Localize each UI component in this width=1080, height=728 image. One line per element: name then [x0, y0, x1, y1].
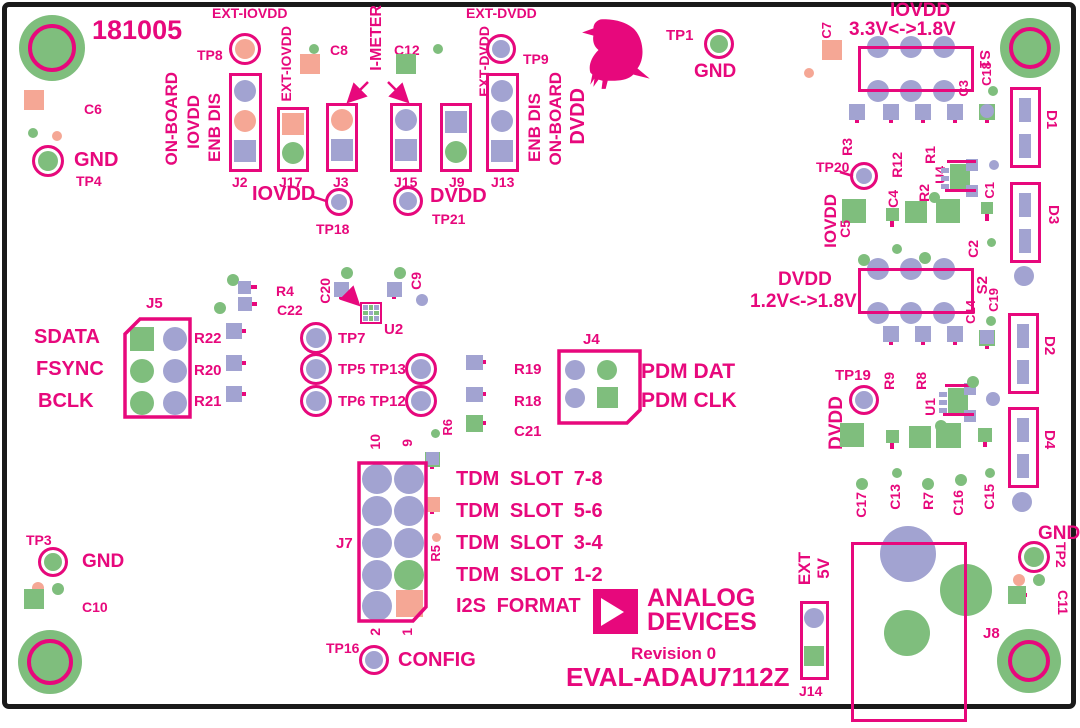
- label-c1: C1: [983, 182, 996, 199]
- via: [989, 160, 999, 170]
- ic-u4-mark: [945, 189, 976, 192]
- via: [416, 294, 428, 306]
- testpoint-tp3: [38, 547, 68, 577]
- label-c11: C11: [1056, 590, 1070, 615]
- label-u1: U1: [923, 398, 937, 416]
- testpoint-tp12: [405, 385, 437, 417]
- pad: [394, 496, 424, 526]
- testpoint-tp6: [300, 385, 332, 417]
- label-fsync: FSYNC: [36, 359, 104, 379]
- label-r6: R6: [441, 419, 454, 436]
- pad: [394, 560, 424, 590]
- cap-c13: [890, 430, 894, 449]
- cap-c1: [985, 202, 989, 221]
- pad: [980, 104, 994, 118]
- via: [1033, 574, 1045, 586]
- label-dvdd-tp21: DVDD: [430, 186, 487, 206]
- pad: [334, 282, 349, 297]
- mounting-hole: [19, 15, 85, 81]
- bird-icon: [578, 10, 660, 94]
- hole-ring: [28, 24, 76, 72]
- label-pin10: 10: [368, 434, 382, 450]
- cap-c2: [946, 199, 950, 218]
- label-j5: J5: [146, 296, 163, 311]
- pad: [396, 590, 423, 617]
- pad: [226, 386, 242, 402]
- label-d3: D3: [1046, 205, 1061, 224]
- label-i2s-format: I2S FORMAT: [456, 596, 581, 616]
- pad: [597, 387, 618, 408]
- via: [856, 478, 868, 490]
- testpoint-tp8: [229, 33, 261, 65]
- pad: [941, 168, 949, 173]
- pad: [163, 327, 187, 351]
- res-r4: [238, 285, 257, 289]
- label-r8: R8: [914, 372, 928, 390]
- label-tp3: TP3: [26, 533, 52, 547]
- pad: [394, 464, 424, 494]
- label-r4: R4: [276, 284, 294, 298]
- label-pin9: 9: [400, 439, 414, 447]
- label-c3: C3: [957, 80, 970, 97]
- via: [394, 267, 406, 279]
- label-r22: R22: [194, 331, 222, 346]
- testpoint-tp16: [359, 645, 389, 675]
- pad: [24, 90, 44, 110]
- label-r7: R7: [921, 492, 935, 510]
- label-c13: C13: [888, 484, 902, 510]
- label-c14: C14: [964, 300, 977, 324]
- label-r1: R1: [923, 146, 937, 164]
- label-i-meter: I-METER: [369, 5, 385, 71]
- label-c15: C15: [982, 484, 996, 510]
- res-r21: [226, 392, 246, 396]
- pad: [396, 54, 416, 74]
- adi-logo-triangle-icon: [601, 598, 624, 626]
- via: [431, 429, 440, 438]
- pad: [226, 323, 242, 339]
- via: [988, 86, 998, 96]
- label-r19: R19: [514, 362, 542, 377]
- label-c21: C21: [514, 424, 542, 439]
- label-c9: C9: [409, 272, 423, 290]
- label-sdata: SDATA: [34, 327, 100, 347]
- label-c16: C16: [951, 490, 965, 516]
- label-c10: C10: [82, 600, 108, 614]
- via: [955, 474, 967, 486]
- label-enb-dis-right: ENB DIS: [526, 93, 543, 162]
- label-j7: J7: [336, 536, 353, 551]
- label-tp1: TP1: [666, 28, 694, 43]
- label-on-board-right: ON-BOARD: [547, 72, 564, 166]
- label-c22: C22: [277, 303, 303, 317]
- ic-u1-mark: [943, 413, 974, 416]
- header-j2: [229, 73, 262, 172]
- pad: [394, 528, 424, 558]
- pad: [886, 430, 899, 443]
- label-iovdd-rail: IOVDD: [890, 1, 950, 20]
- label-j8: J8: [983, 626, 1000, 641]
- via: [892, 244, 902, 254]
- cap-c12: [396, 62, 416, 66]
- pad: [425, 497, 440, 512]
- pad: [883, 326, 899, 342]
- testpoint-tp2: [1018, 541, 1050, 573]
- label-j4: J4: [583, 332, 600, 347]
- cap-c4: [890, 208, 894, 227]
- label-pdm-dat: PDM DAT: [641, 361, 735, 382]
- pad: [822, 40, 842, 60]
- res-r22: [226, 329, 246, 333]
- res-r12: [889, 104, 893, 123]
- pad: [840, 423, 864, 447]
- cap-c10: [24, 597, 43, 601]
- cap-c18: [985, 104, 989, 123]
- label-r20: R20: [194, 363, 222, 378]
- label-c2: C2: [966, 240, 980, 258]
- via: [804, 68, 814, 78]
- via: [214, 302, 226, 314]
- label-c19: C19: [987, 288, 1000, 312]
- via: [1013, 574, 1025, 586]
- header-j14: [800, 601, 829, 680]
- cap-c6: [24, 98, 44, 102]
- label-tp16: TP16: [326, 641, 359, 655]
- label-tp6: TP6: [338, 394, 366, 409]
- label-c5: C5: [838, 220, 852, 238]
- pad: [24, 589, 44, 609]
- res-r18: [466, 392, 486, 396]
- revision: Revision 0: [631, 645, 716, 662]
- pad: [426, 452, 439, 465]
- label-tp21: TP21: [432, 212, 465, 226]
- via: [987, 238, 996, 247]
- pad: [362, 591, 392, 621]
- pad: [362, 560, 392, 590]
- label-gnd-tp3: GND: [82, 552, 124, 571]
- cap-c16: [946, 423, 950, 442]
- res-r8: [921, 326, 925, 345]
- label-ext-iovdd-side: EXT-IOVDD: [279, 26, 293, 101]
- pad: [163, 359, 187, 383]
- pad: [130, 359, 154, 383]
- pad: [362, 528, 392, 558]
- switch-s2: [858, 268, 974, 314]
- res-r3: [855, 104, 859, 123]
- label-tdm-slot-78: TDM SLOT 7-8: [456, 469, 603, 489]
- via: [967, 376, 979, 388]
- pad: [226, 355, 242, 371]
- testpoint-tp7: [300, 322, 332, 354]
- diode-d1: [1010, 87, 1041, 168]
- res-r20: [226, 361, 246, 365]
- cap-c8: [300, 62, 320, 66]
- label-tp2: TP2: [1054, 542, 1068, 568]
- label-tp8: TP8: [197, 48, 223, 62]
- connector-outline: [851, 542, 967, 722]
- label-c4: C4: [886, 190, 900, 208]
- via: [1014, 266, 1034, 286]
- label-pin2: 2: [368, 628, 382, 636]
- label-d2: D2: [1042, 336, 1057, 355]
- label-tp19: TP19: [835, 368, 871, 383]
- label-tp5: TP5: [338, 362, 366, 377]
- pad: [130, 391, 154, 415]
- testpoint-tp20: [850, 162, 878, 190]
- diode-d3: [1010, 182, 1041, 263]
- label-r12: R12: [890, 152, 904, 178]
- label-tp7: TP7: [338, 331, 366, 346]
- pad: [978, 428, 992, 442]
- label-ext-5v-1: EXT: [796, 552, 813, 585]
- pad: [362, 496, 392, 526]
- pad: [915, 104, 931, 120]
- res-r7: [918, 426, 922, 445]
- pad: [936, 199, 960, 223]
- label-tdm-slot-56: TDM SLOT 5-6: [456, 501, 603, 521]
- label-tp18: TP18: [316, 222, 349, 236]
- pad: [939, 392, 947, 397]
- label-on-board-left: ON-BOARD: [163, 72, 180, 166]
- cap-c19: [985, 330, 989, 349]
- testpoint-tp19: [849, 385, 879, 415]
- via: [922, 478, 934, 490]
- via: [986, 316, 996, 326]
- pad: [981, 202, 993, 214]
- via: [1012, 492, 1032, 512]
- label-c18: C18: [980, 62, 993, 86]
- cap-c9: [392, 282, 396, 299]
- pad: [980, 330, 994, 344]
- testpoint-tp1: [704, 29, 734, 59]
- cap-c22: [238, 302, 257, 306]
- label-dvdd-range: 1.2V<->1.8V: [750, 292, 857, 311]
- testpoint-tp9: [486, 34, 516, 64]
- via: [892, 468, 902, 478]
- header-j17: [277, 107, 309, 172]
- pad: [964, 410, 976, 422]
- via: [985, 468, 995, 478]
- pad: [362, 464, 392, 494]
- label-iovdd-tp18: IOVDD: [252, 184, 315, 204]
- part-number: EVAL-ADAU7112Z: [566, 664, 789, 690]
- pad: [905, 201, 927, 223]
- label-ext-iovdd-top: EXT-IOVDD: [212, 6, 287, 20]
- label-j2: J2: [232, 175, 248, 189]
- pad: [1008, 586, 1026, 604]
- label-tp12: TP12: [370, 394, 406, 409]
- label-r5: R5: [429, 545, 442, 562]
- label-r18: R18: [514, 394, 542, 409]
- testpoint-tp18: [325, 188, 353, 216]
- pad: [883, 104, 899, 120]
- via: [52, 583, 64, 595]
- pad: [565, 360, 585, 380]
- cap-c15: [983, 428, 987, 447]
- label-tp4: TP4: [76, 174, 102, 188]
- label-pdm-clk: PDM CLK: [641, 390, 737, 411]
- pad: [466, 415, 483, 432]
- pad: [909, 426, 931, 448]
- header-j3: [326, 103, 358, 172]
- pad: [466, 387, 483, 402]
- brand-line2: DEVICES: [647, 610, 757, 635]
- pad: [886, 208, 899, 221]
- label-c7: C7: [820, 22, 833, 39]
- label-config: CONFIG: [398, 650, 476, 670]
- mounting-hole-j8: [997, 629, 1061, 693]
- label-tdm-slot-34: TDM SLOT 3-4: [456, 533, 603, 553]
- cap-c17: [850, 423, 854, 442]
- diode-d4: [1008, 407, 1039, 488]
- pad: [947, 326, 963, 342]
- header-j9: [440, 103, 472, 172]
- pad: [466, 355, 483, 370]
- label-tp20: TP20: [816, 160, 849, 174]
- ic-u2: [360, 302, 382, 324]
- res-r1: [921, 104, 925, 123]
- via: [52, 131, 62, 141]
- pad: [238, 297, 252, 311]
- via: [309, 44, 319, 54]
- header-j15: [390, 103, 422, 172]
- serial-number: 181005: [92, 17, 182, 44]
- testpoint-tp4: [32, 145, 64, 177]
- res-r6: [430, 452, 434, 469]
- label-j13: J13: [491, 175, 514, 189]
- label-u2: U2: [384, 322, 403, 337]
- pad: [300, 54, 320, 74]
- label-dvdd-right: DVDD: [568, 88, 588, 145]
- pad: [163, 391, 187, 415]
- via: [341, 267, 353, 279]
- label-tp13: TP13: [370, 362, 406, 377]
- label-d4: D4: [1042, 430, 1057, 449]
- label-gnd-tp4: GND: [74, 150, 118, 170]
- pad: [565, 388, 585, 408]
- testpoint-tp5: [300, 353, 332, 385]
- res-r9: [889, 326, 893, 345]
- header-j13: [486, 73, 519, 172]
- cap-c3: [953, 104, 957, 123]
- testpoint-tp13: [405, 353, 437, 385]
- label-r3: R3: [840, 138, 854, 156]
- pad: [849, 104, 865, 120]
- label-gnd-tp1: GND: [694, 62, 736, 81]
- pad: [939, 400, 947, 405]
- pad: [941, 176, 949, 181]
- via: [28, 128, 38, 138]
- label-c20: C20: [318, 278, 332, 304]
- res-r5: [430, 497, 434, 514]
- hole-ring: [1009, 27, 1051, 69]
- pad: [915, 326, 931, 342]
- diode-d2: [1008, 313, 1039, 394]
- ic-u4-mark: [947, 160, 976, 163]
- cap-c5: [852, 199, 856, 218]
- via: [433, 44, 443, 54]
- via: [919, 252, 931, 264]
- pad: [597, 360, 617, 380]
- cap-c21: [466, 421, 486, 425]
- hole-ring: [1008, 640, 1050, 682]
- label-d1: D1: [1044, 110, 1059, 129]
- mounting-hole: [18, 630, 82, 694]
- label-r9: R9: [882, 372, 896, 390]
- testpoint-tp21: [393, 186, 423, 216]
- label-bclk: BCLK: [38, 391, 94, 411]
- label-c8: C8: [330, 43, 348, 57]
- label-tp9: TP9: [523, 52, 549, 66]
- adi-logo-icon: [593, 589, 638, 634]
- hole-ring: [27, 639, 73, 685]
- via: [986, 392, 1000, 406]
- label-ext-5v-2: 5V: [815, 558, 832, 579]
- label-dvdd-rail: DVDD: [778, 270, 832, 289]
- pcb-silkscreen-diagram: 181005 C6 GND TP4 EXT-IOVDD TP8 ON-BOARD…: [0, 0, 1080, 728]
- pad: [238, 281, 251, 294]
- label-c17: C17: [854, 492, 868, 518]
- label-gnd-tp2: GND: [1038, 524, 1080, 543]
- pad: [130, 327, 154, 351]
- cap-c14: [953, 326, 957, 345]
- cap-c7: [830, 40, 834, 59]
- label-r21: R21: [194, 394, 222, 409]
- label-iovdd-left: IOVDD: [185, 95, 202, 149]
- cap-c11: [1008, 593, 1027, 597]
- cap-c20: [339, 282, 343, 299]
- res-r19: [466, 360, 486, 364]
- label-enb-dis-left: ENB DIS: [206, 93, 223, 162]
- label-pin1: 1: [400, 628, 414, 636]
- mounting-hole: [1000, 18, 1060, 78]
- via: [432, 533, 441, 542]
- pad: [936, 423, 961, 448]
- label-c6: C6: [84, 102, 102, 116]
- label-j14: J14: [799, 684, 822, 698]
- res-r2: [914, 201, 918, 220]
- pad: [387, 282, 402, 297]
- label-j3: J3: [333, 175, 349, 189]
- pad: [947, 104, 963, 120]
- label-tdm-slot-12: TDM SLOT 1-2: [456, 565, 603, 585]
- label-ext-dvdd-top: EXT-DVDD: [466, 6, 537, 20]
